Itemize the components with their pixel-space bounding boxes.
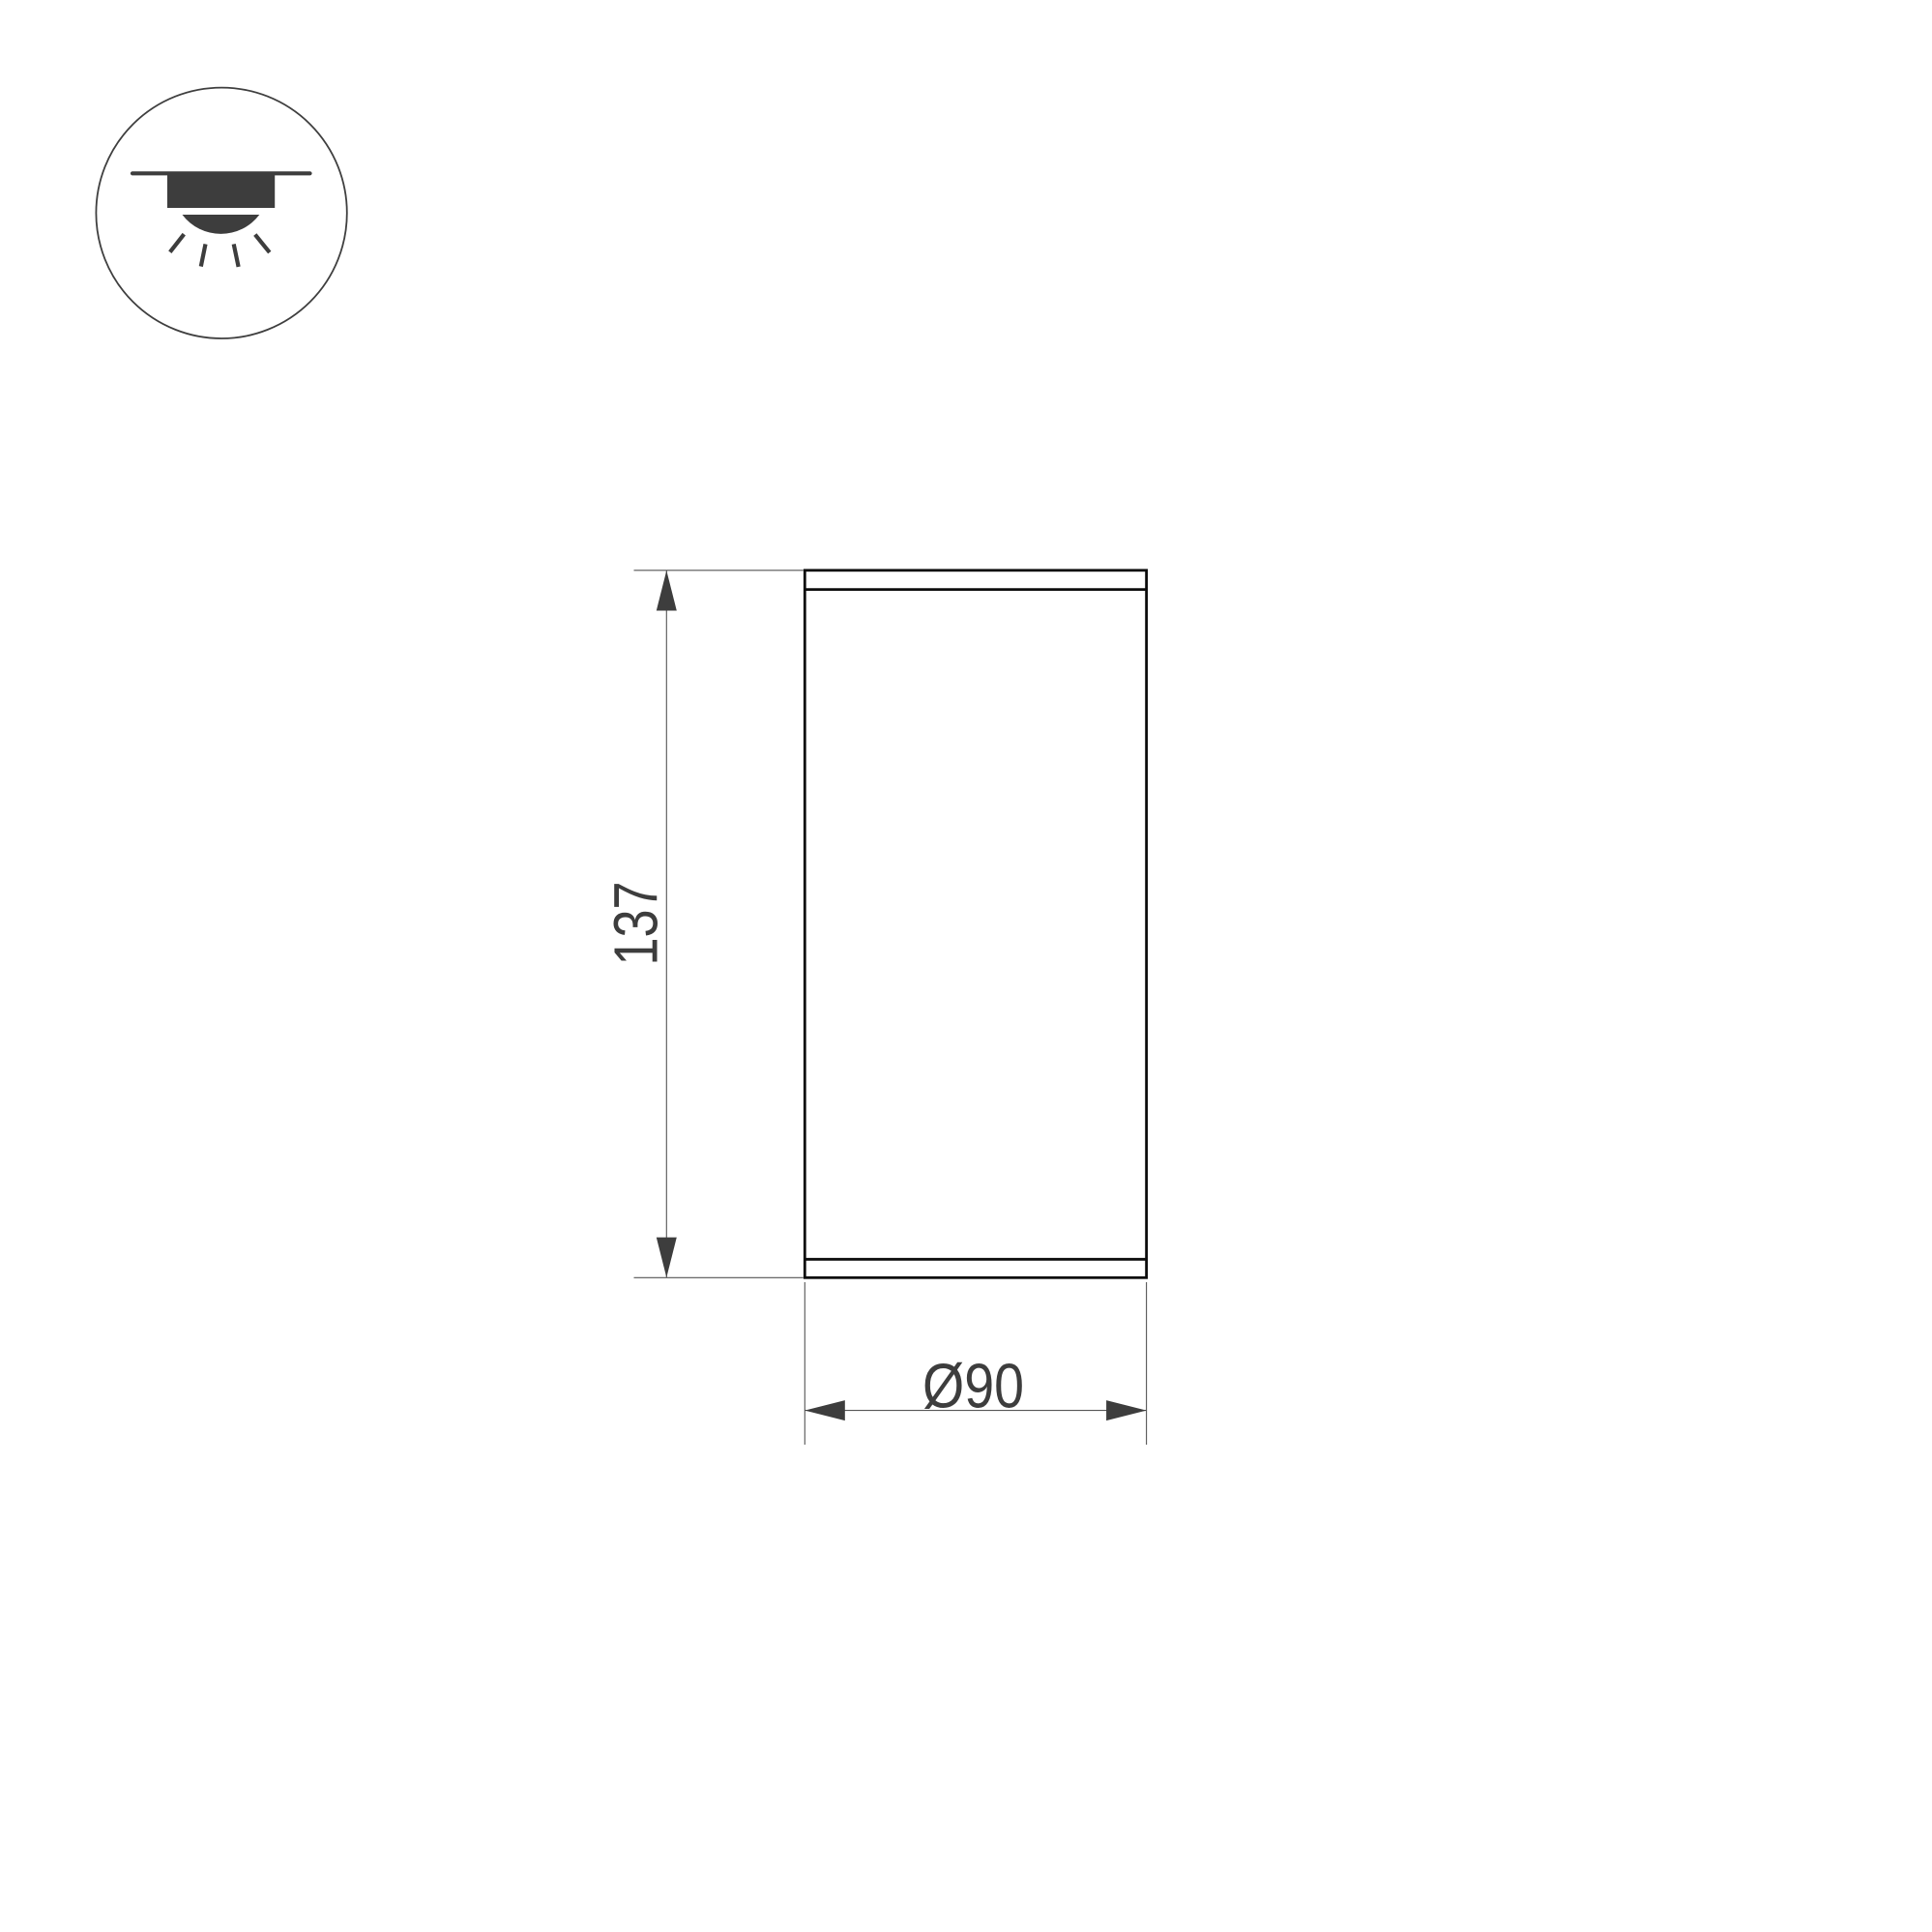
svg-text:Ø90: Ø90 — [922, 1351, 1024, 1421]
svg-text:137: 137 — [601, 882, 671, 966]
